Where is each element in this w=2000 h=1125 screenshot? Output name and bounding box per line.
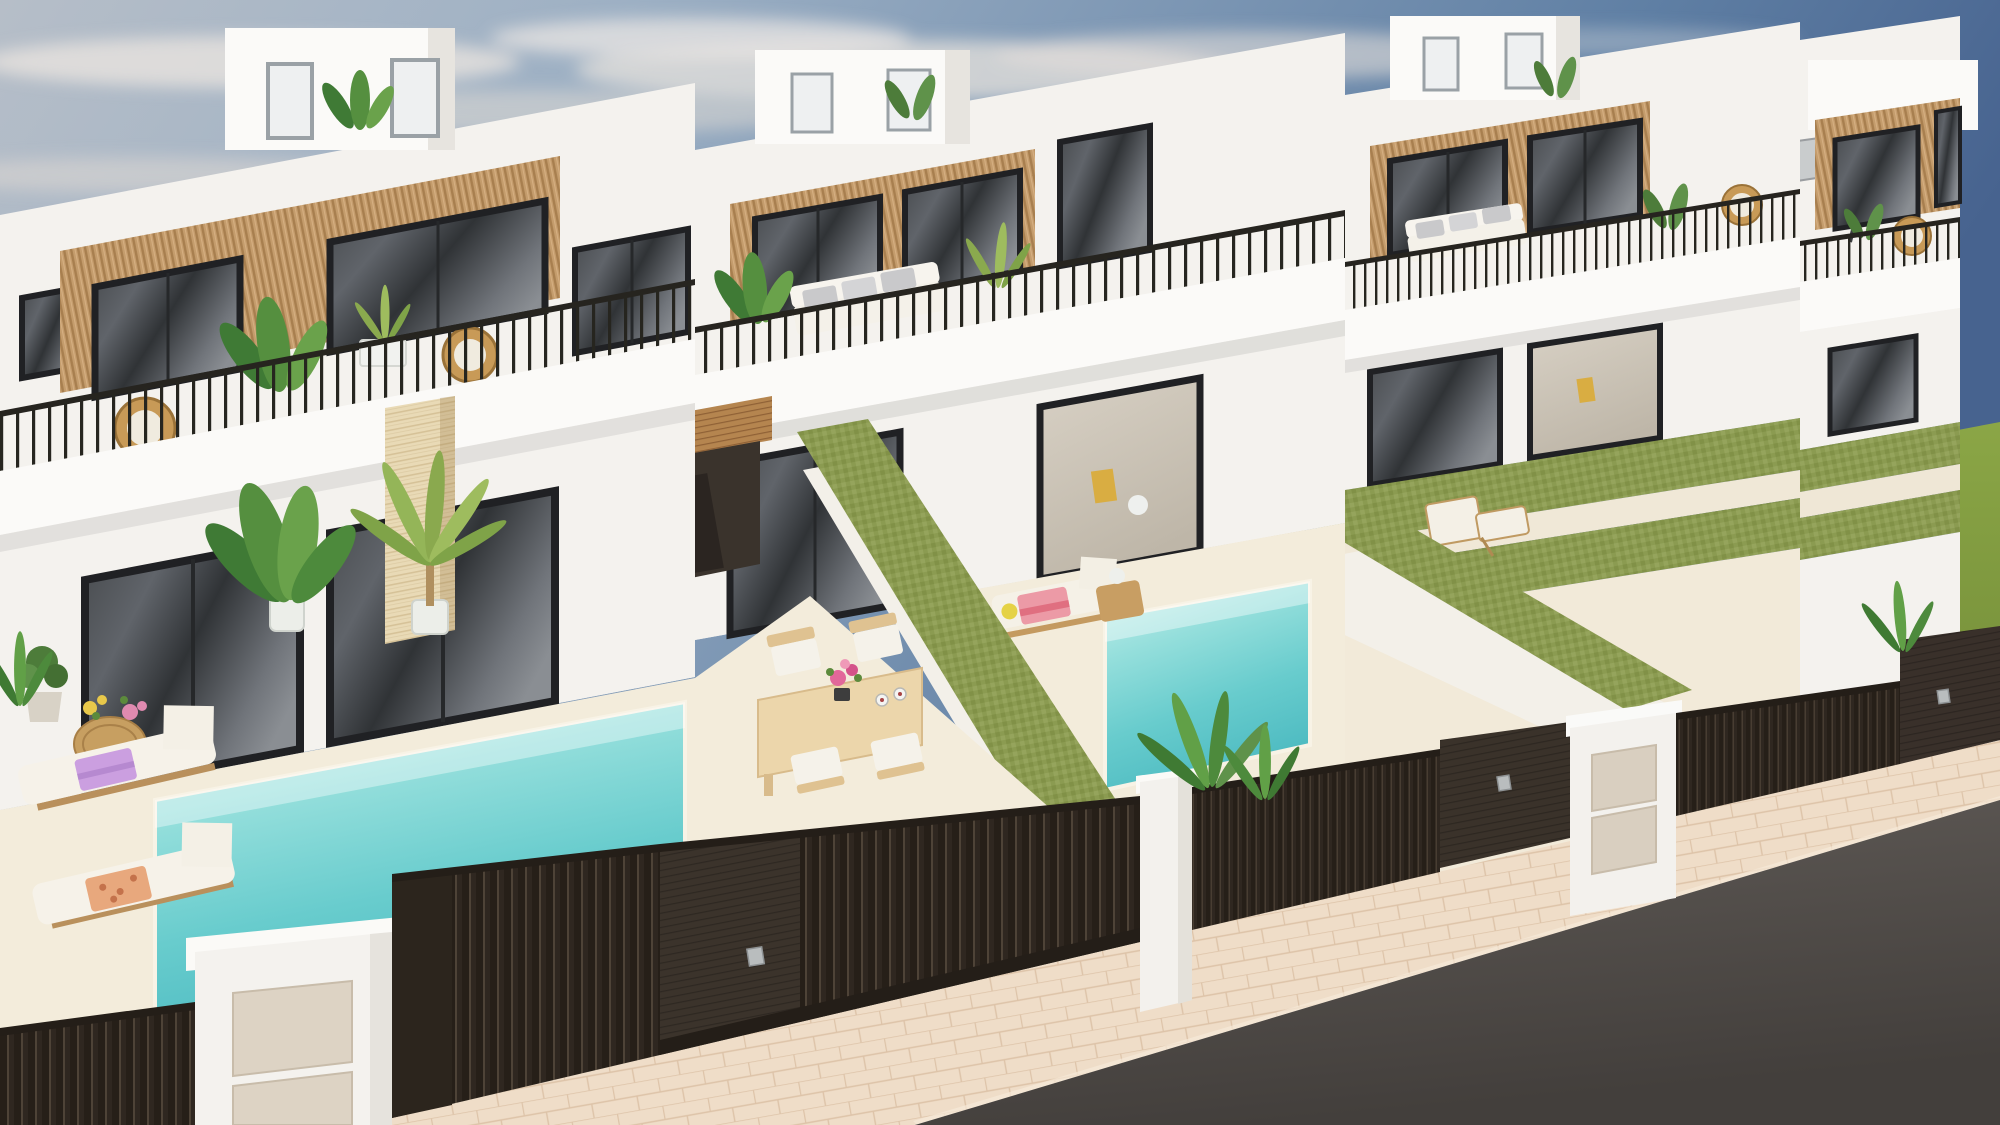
leaf — [380, 285, 389, 342]
villa-4-glass-door — [1830, 336, 1916, 434]
flower-yellow — [97, 695, 107, 705]
table-leg — [764, 774, 773, 796]
gate-lock — [1497, 775, 1511, 791]
palm-trunk — [426, 560, 434, 606]
mailbox-pillar-1-shade — [370, 932, 392, 1125]
villa-3-rooftop-door — [1424, 38, 1458, 90]
mailbox-pillar-2-shade — [1178, 775, 1192, 1004]
entrance-gate-1-stile — [392, 871, 452, 1118]
flower-leaf — [92, 712, 100, 720]
villa-2-roof-terrace-box — [755, 50, 970, 144]
coffee-cup-center — [898, 692, 902, 696]
interior-yellow-chair — [1091, 469, 1117, 504]
villa-2-roof-box-shade — [945, 50, 970, 144]
lounger-backrest — [181, 822, 232, 867]
deck-chair-back — [1425, 496, 1484, 546]
flower-pink — [122, 704, 138, 720]
side-table-2 — [1095, 579, 1145, 622]
mailbox-panel — [1592, 806, 1656, 874]
coffee-cup-center — [880, 698, 884, 702]
lounger-backrest — [163, 705, 214, 750]
villa-2-glass-door-2 — [1040, 378, 1200, 579]
villa-4-window-2 — [1936, 108, 1960, 206]
villa-3-glass-door-2 — [1530, 326, 1660, 458]
side-table-pot — [1109, 568, 1125, 584]
villa-1-rooftop-door-2 — [392, 60, 438, 136]
villa-2-window-3 — [1060, 126, 1150, 266]
villa-render-scene: Daytime 3D architectural rendering, elev… — [0, 0, 2000, 1125]
villa-3-glass-door — [1370, 351, 1500, 485]
interior-yellow-chair — [1576, 377, 1595, 403]
interior-table — [1128, 495, 1148, 515]
gate-lock — [1937, 689, 1950, 703]
mailbox-panel — [233, 981, 352, 1076]
flower-leaf — [120, 696, 128, 704]
flower-vase — [834, 688, 850, 701]
villa-1-rooftop-door — [268, 64, 312, 138]
render-canvas: Daytime 3D architectural rendering, elev… — [0, 0, 2000, 1125]
flower-centerpiece — [840, 659, 850, 669]
flower-leaf — [854, 674, 862, 682]
gate-lock — [747, 947, 764, 966]
leaf — [14, 631, 26, 706]
leaf — [1259, 724, 1271, 799]
flower-leaf — [826, 668, 834, 676]
mailbox-panel — [1592, 745, 1656, 811]
villa-2-rooftop-door — [792, 74, 832, 132]
gate-panel-texture — [1900, 626, 2000, 764]
flower-pink — [137, 701, 147, 711]
